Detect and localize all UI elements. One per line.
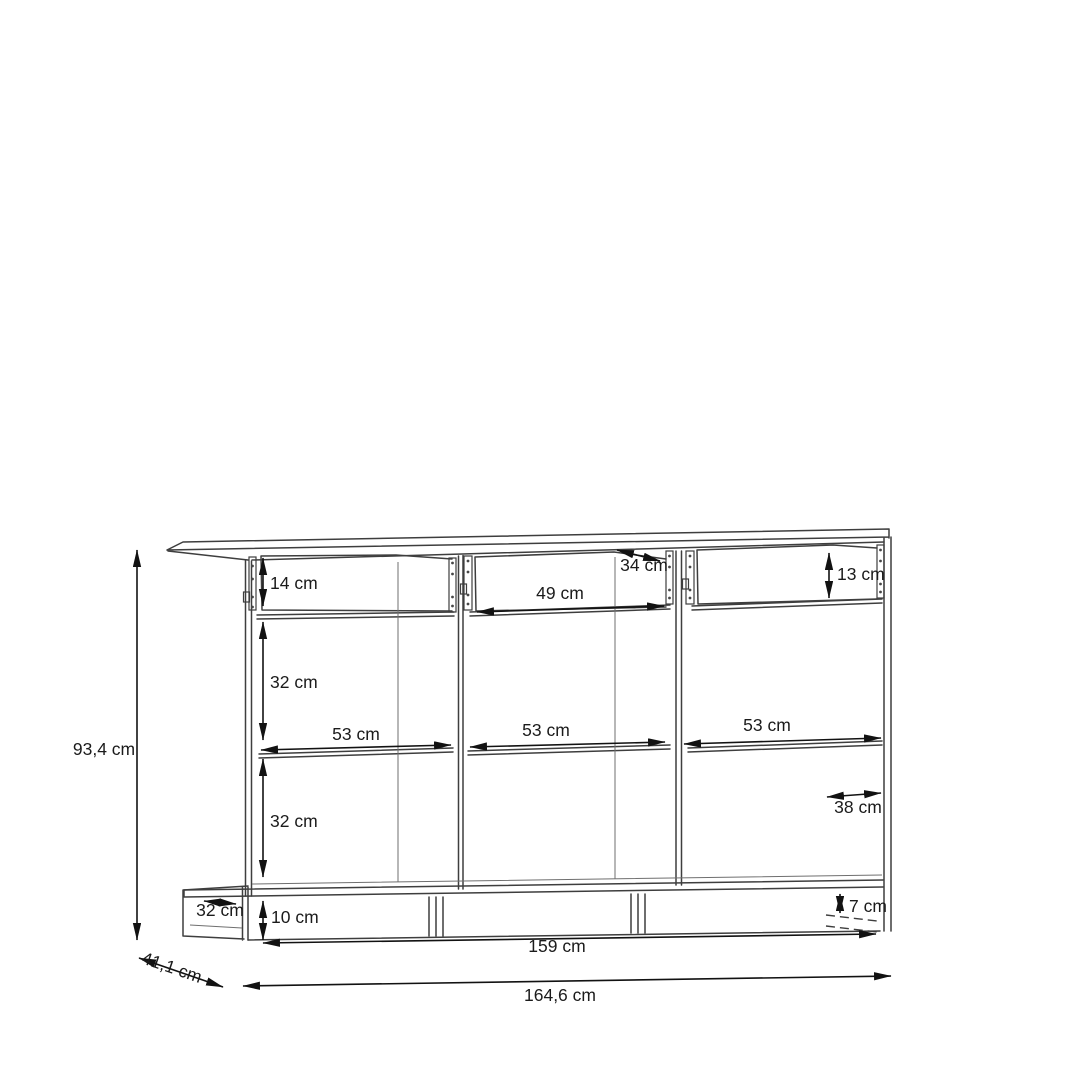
label-left-drawer-height: 14 cm	[270, 573, 318, 593]
label-middle-drawer-depth: 34 cm	[620, 555, 668, 575]
interior-back-edges	[190, 557, 882, 928]
dim-arrow-middle-drawer-width	[477, 606, 664, 612]
plinth-dashed-edge	[826, 915, 877, 932]
label-lower-compartment-height: 32 cm	[270, 811, 318, 831]
label-overall-width: 164,6 cm	[524, 985, 596, 1005]
dim-arrow-right-compartment-width	[684, 738, 881, 744]
label-plinth-rear-height: 7 cm	[849, 896, 887, 916]
label-right-compartment-width: 53 cm	[743, 715, 791, 735]
furniture-dimension-diagram: 93,4 cm 41,1 cm 164,6 cm 159 cm 14 cm 49…	[0, 0, 1080, 1080]
label-right-compartment-depth: 38 cm	[834, 797, 882, 817]
label-middle-drawer-width: 49 cm	[536, 583, 584, 603]
label-right-drawer-height: 13 cm	[837, 564, 885, 584]
label-base-width: 159 cm	[528, 936, 585, 956]
label-plinth-height: 10 cm	[271, 907, 319, 927]
label-overall-height: 93,4 cm	[73, 739, 135, 759]
label-upper-compartment-height: 32 cm	[270, 672, 318, 692]
dimension-arrows	[137, 550, 891, 987]
label-plinth-depth: 32 cm	[196, 900, 244, 920]
label-middle-compartment-width: 53 cm	[522, 720, 570, 740]
cabinet-technical-drawing: 93,4 cm 41,1 cm 164,6 cm 159 cm 14 cm 49…	[0, 0, 1080, 1080]
dimension-labels: 93,4 cm 41,1 cm 164,6 cm 159 cm 14 cm 49…	[73, 555, 887, 1005]
label-left-compartment-width: 53 cm	[332, 724, 380, 744]
label-overall-depth: 41,1 cm	[139, 948, 204, 987]
